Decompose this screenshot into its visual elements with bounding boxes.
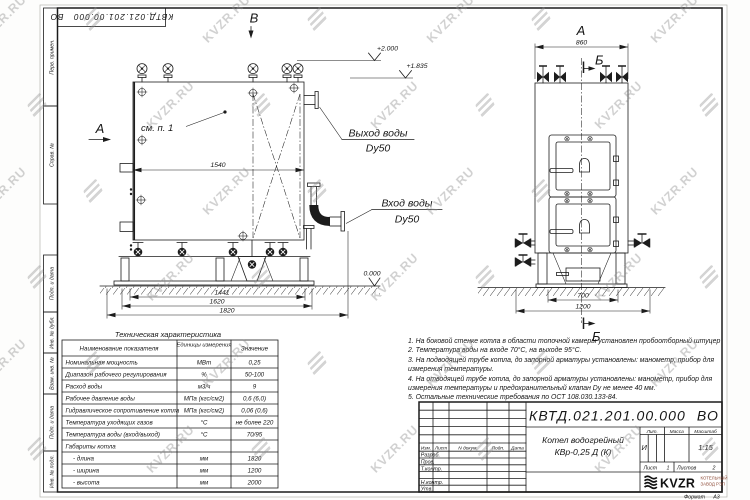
margin-label: Подп. и дата bbox=[50, 267, 56, 300]
margin-label: Подп. и дата bbox=[50, 406, 56, 439]
svg-text:Диапазон рабочего регулировани: Диапазон рабочего регулирования bbox=[65, 372, 168, 379]
svg-text:%: % bbox=[201, 372, 207, 379]
svg-text:МПа (кгс/см2): МПа (кгс/см2) bbox=[184, 396, 224, 403]
scale-value: 1:15 bbox=[698, 443, 713, 452]
dim-side-base-1: 700 bbox=[577, 293, 589, 300]
svg-text:мм: мм bbox=[200, 468, 209, 475]
outlet-size: Dy50 bbox=[366, 143, 391, 155]
margin-label: Инв. № подл. bbox=[50, 455, 56, 488]
product-name-line1: Котел водогрейный bbox=[542, 435, 624, 445]
col-list: Лист bbox=[434, 446, 447, 452]
svg-text:1820: 1820 bbox=[248, 456, 262, 463]
dim-side-base-2: 1200 bbox=[575, 304, 590, 311]
dim-front-base-2: 1620 bbox=[209, 299, 224, 306]
svg-text:0,06 (0,6): 0,06 (0,6) bbox=[241, 408, 267, 415]
view-letter-b-top: В bbox=[250, 11, 259, 26]
col-date: Дата bbox=[510, 446, 524, 452]
role-label: Пров. bbox=[421, 460, 435, 466]
format-value: А3 bbox=[712, 494, 720, 500]
sheet-value: 1 bbox=[667, 466, 670, 472]
view-letter-a-top: А bbox=[576, 23, 586, 38]
svg-text:- ширина: - ширина bbox=[73, 468, 100, 475]
note-item: 1. На боковой стенке котла в области топ… bbox=[408, 337, 730, 346]
stamp-doc-number: КВТД.021.201.00.000 ВО bbox=[50, 12, 174, 21]
role-label: Разраб. bbox=[421, 453, 440, 459]
sheets-value: 2 bbox=[712, 466, 716, 472]
svg-text:Температура уходящих газов: Температура уходящих газов bbox=[66, 420, 154, 427]
view-letter-a-left: А bbox=[95, 121, 105, 136]
note-item: 3. На подводящей трубе котла, до запорно… bbox=[408, 356, 730, 375]
svg-text:70/95: 70/95 bbox=[247, 432, 263, 439]
col-izm: Изм. bbox=[421, 446, 431, 452]
outlet-label: Выход воды bbox=[348, 128, 407, 140]
logo-text: KVZR bbox=[660, 477, 695, 491]
role-label: Утв. bbox=[421, 487, 433, 493]
svg-text:м3/ч: м3/ч bbox=[198, 384, 211, 391]
margin-label: Справ. № bbox=[50, 143, 56, 167]
svg-text:Номинальная мощность: Номинальная мощность bbox=[66, 360, 138, 367]
note-item: 5. Остальные технические требования по О… bbox=[408, 393, 730, 402]
col-doc: N докум. bbox=[458, 446, 477, 452]
svg-text:не более 220: не более 220 bbox=[236, 420, 274, 427]
note-item: 2. Температура воды на входе 70°С, на вы… bbox=[408, 346, 730, 355]
note-item: 4. На отводящей трубе котла, до запорной… bbox=[408, 375, 730, 394]
drawing-sheet: Перв. примен. Справ. № Подп. и дата Инв.… bbox=[0, 0, 750, 500]
technical-notes: 1. На боковой стенке котла в области топ… bbox=[408, 337, 730, 403]
svg-text:50-100: 50-100 bbox=[245, 372, 265, 379]
drawing-canvas: Перв. примен. Справ. № Подп. и дата Инв.… bbox=[0, 0, 750, 500]
svg-text:0,25: 0,25 bbox=[248, 360, 261, 367]
elevation-outlet: +1.835 bbox=[407, 63, 428, 70]
dim-front-base-1: 1441 bbox=[214, 290, 229, 297]
svg-text:0,6 (6,0): 0,6 (6,0) bbox=[243, 396, 266, 403]
tech-table-title: Техническая характеристика bbox=[115, 330, 221, 339]
scale-label: Масштаб bbox=[694, 429, 717, 435]
svg-text:°С: °С bbox=[201, 432, 208, 439]
svg-text:9: 9 bbox=[253, 384, 257, 391]
dim-front-inner-width: 1540 bbox=[210, 162, 225, 169]
lit-value: И bbox=[642, 443, 648, 452]
see-note-callout: см. п. 1 bbox=[141, 123, 173, 134]
inlet-size: Dy50 bbox=[395, 214, 420, 226]
role-label: Н.контр. bbox=[421, 480, 443, 486]
doc-number: КВТД.021.201.00.000 ВО bbox=[529, 408, 719, 424]
svg-text:Габариты котла: Габариты котла bbox=[66, 444, 117, 451]
elevation-top: +2.000 bbox=[377, 46, 398, 53]
sheet-label: Лист bbox=[643, 466, 658, 472]
logo-sub-line1: КОТЕЛЬНЫЙ bbox=[701, 476, 728, 481]
elevation-ground: 0.000 bbox=[363, 271, 380, 278]
col-header: Значение bbox=[241, 346, 269, 353]
lit-label: Лит. bbox=[646, 429, 658, 435]
svg-text:мм: мм bbox=[200, 480, 209, 487]
margin-label: Перв. примен. bbox=[50, 39, 56, 74]
svg-text:Гидравлическое сопротивление к: Гидравлическое сопротивление котла bbox=[66, 408, 180, 415]
svg-text:2000: 2000 bbox=[247, 480, 262, 487]
svg-text:°С: °С bbox=[201, 420, 208, 427]
logo-sub-line2: ЗАВОД РЭП bbox=[701, 482, 726, 487]
dim-side-top: 860 bbox=[576, 40, 588, 47]
margin-label: Взам. инв. № bbox=[50, 357, 56, 390]
svg-text:Рабочее давление воды: Рабочее давление воды bbox=[66, 396, 136, 403]
col-sign: Подп. bbox=[492, 446, 505, 452]
inlet-label: Вход воды bbox=[382, 198, 433, 210]
col-header: Единицы измерения bbox=[177, 343, 232, 349]
sheets-label: Листов bbox=[676, 466, 697, 472]
svg-text:мм: мм bbox=[200, 456, 209, 463]
svg-text:- высота: - высота bbox=[73, 480, 100, 487]
col-header: Наименование показателя bbox=[80, 346, 160, 353]
role-label: Т.контр. bbox=[421, 466, 442, 472]
svg-text:МПа (кгс/см2): МПа (кгс/см2) bbox=[184, 408, 224, 415]
svg-text:МВт: МВт bbox=[197, 360, 211, 367]
product-name-line2: КВр-0,25 Д (К) bbox=[555, 447, 612, 457]
svg-text:- длина: - длина bbox=[73, 456, 95, 463]
section-letter-b-top: Б bbox=[595, 53, 604, 68]
dim-front-overall: 1820 bbox=[219, 308, 234, 315]
svg-text:Расход воды: Расход воды bbox=[66, 384, 103, 391]
format-label: Формат bbox=[684, 494, 706, 500]
mass-label: Масса bbox=[670, 429, 685, 435]
svg-text:Температура воды (вход/выход): Температура воды (вход/выход) bbox=[66, 432, 160, 439]
margin-label: Инв. № дубл. bbox=[50, 316, 56, 349]
svg-text:1200: 1200 bbox=[248, 468, 262, 475]
